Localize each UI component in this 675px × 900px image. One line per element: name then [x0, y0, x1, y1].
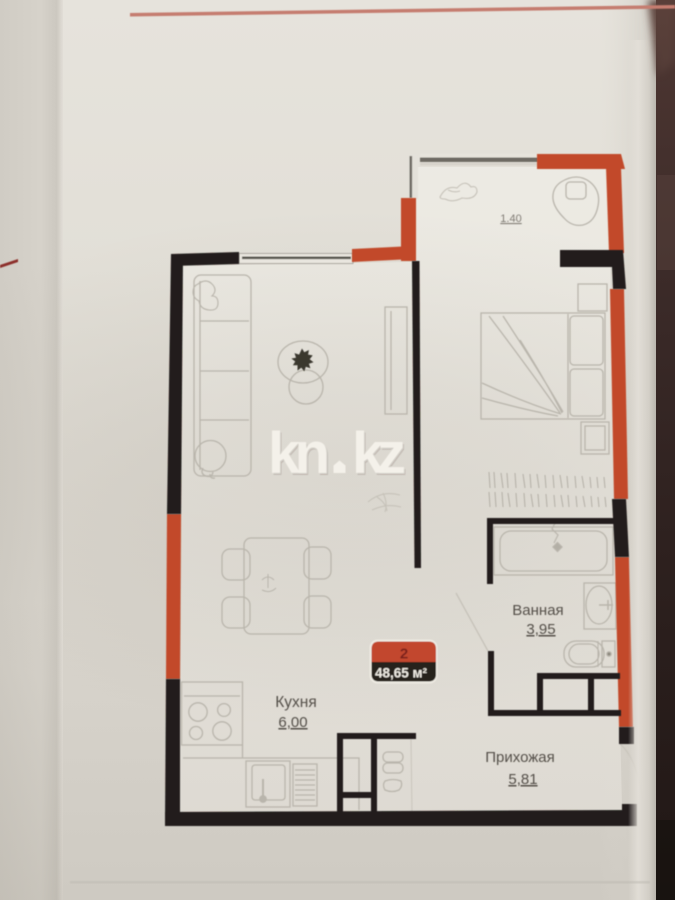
- svg-text:48,65 м²: 48,65 м²: [375, 666, 428, 681]
- svg-text:kn: kn: [268, 421, 330, 486]
- svg-text:Прихожая: Прихожая: [485, 749, 555, 766]
- svg-text:5,81: 5,81: [508, 771, 537, 788]
- svg-text:6,00: 6,00: [278, 714, 307, 731]
- svg-text:Кухня: Кухня: [275, 694, 316, 711]
- svg-text:kz: kz: [352, 421, 406, 486]
- svg-text:Ванная: Ванная: [512, 602, 563, 619]
- svg-text:2: 2: [400, 646, 408, 663]
- svg-text:3,95: 3,95: [526, 621, 555, 638]
- svg-text:1.40: 1.40: [500, 213, 521, 225]
